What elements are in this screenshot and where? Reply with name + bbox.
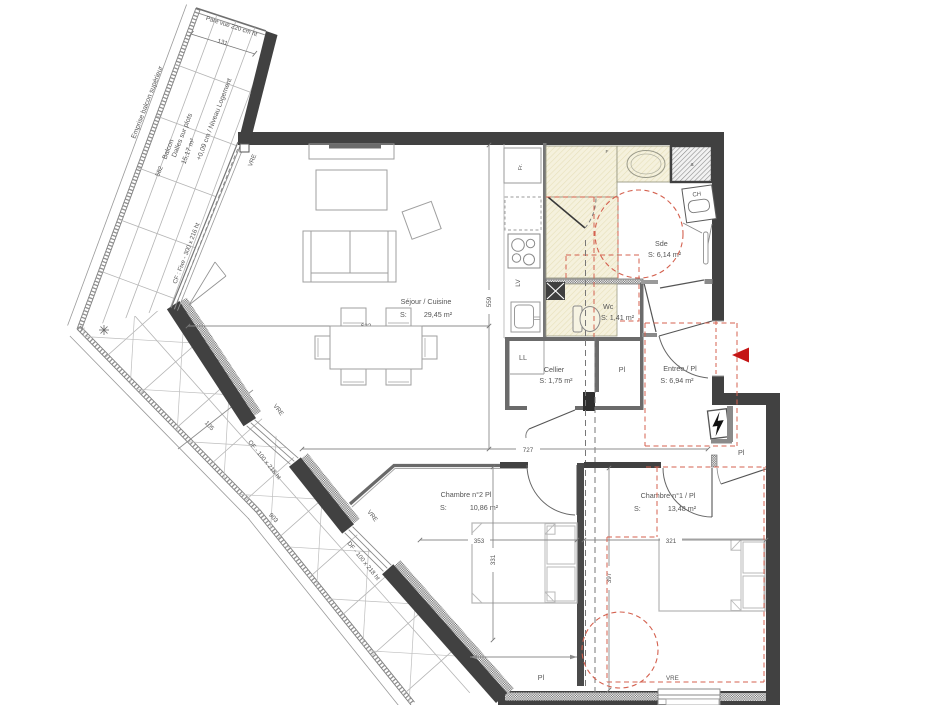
svg-text:Pl: Pl	[538, 673, 545, 682]
svg-text:LL: LL	[519, 353, 527, 362]
svg-text:Fr.: Fr.	[518, 163, 524, 170]
svg-text:321: 321	[666, 538, 677, 545]
svg-text:727: 727	[523, 447, 534, 454]
svg-text:10,86 m²: 10,86 m²	[470, 503, 499, 512]
svg-text:Wc: Wc	[603, 302, 614, 311]
svg-text:S: 6,14 m²: S: 6,14 m²	[648, 250, 682, 259]
svg-text:Séjour / Cuisine: Séjour / Cuisine	[401, 297, 452, 306]
svg-text:S:: S:	[400, 310, 407, 319]
svg-text:VRE: VRE	[666, 675, 679, 682]
svg-text:559: 559	[486, 296, 493, 307]
svg-text:331: 331	[490, 554, 497, 565]
svg-text:LV: LV	[515, 279, 522, 287]
svg-text:353: 353	[474, 538, 485, 545]
svg-text:S: 1,41 m²: S: 1,41 m²	[601, 313, 635, 322]
svg-text:S: 6,94 m²: S: 6,94 m²	[660, 376, 694, 385]
svg-text:Entrée / Pl: Entrée / Pl	[663, 364, 697, 373]
svg-text:Chambre n°1 / Pl: Chambre n°1 / Pl	[641, 491, 696, 500]
svg-text:29,45 m²: 29,45 m²	[424, 310, 453, 319]
svg-text:Sde: Sde	[655, 239, 668, 248]
svg-text:S:: S:	[634, 504, 641, 513]
svg-text:S: 1,75 m²: S: 1,75 m²	[539, 376, 573, 385]
svg-text:F: F	[606, 149, 609, 155]
svg-text:13,48 m²: 13,48 m²	[668, 504, 697, 513]
svg-text:Chambre n°2 Pl: Chambre n°2 Pl	[441, 490, 492, 499]
svg-text:CH: CH	[692, 192, 701, 199]
svg-text:Pl: Pl	[738, 448, 745, 457]
svg-text:S:: S:	[440, 503, 447, 512]
svg-text:Pl: Pl	[619, 365, 626, 374]
svg-text:Cellier: Cellier	[544, 365, 565, 374]
